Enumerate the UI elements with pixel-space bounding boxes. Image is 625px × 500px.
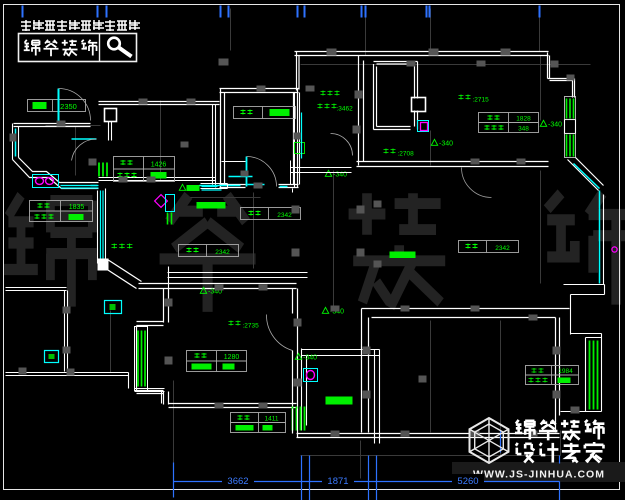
svg-text:-340: -340 [548,122,562,129]
svg-text:3662: 3662 [227,476,248,487]
svg-text:2342: 2342 [277,212,292,219]
svg-text:-340: -340 [439,141,453,148]
svg-text::3462: :3462 [337,106,354,113]
svg-text:2342: 2342 [215,249,230,256]
svg-text::2735: :2735 [243,323,260,330]
svg-text:-340: -340 [303,355,317,362]
svg-text:348: 348 [518,126,529,133]
svg-text:2350: 2350 [60,102,77,111]
svg-text:5260: 5260 [457,476,478,487]
svg-text:1835: 1835 [69,204,85,211]
svg-text::2715: :2715 [473,97,490,104]
svg-text:1426: 1426 [151,162,167,169]
svg-text:1280: 1280 [224,354,240,361]
svg-text:WWW.JS-JINHUA.COM: WWW.JS-JINHUA.COM [473,469,605,481]
svg-text:1411: 1411 [265,416,279,423]
svg-text::2708: :2708 [398,151,415,158]
svg-text:1984: 1984 [558,368,573,375]
svg-text:1871: 1871 [327,476,348,487]
svg-text:1828: 1828 [516,116,531,123]
svg-text:2342: 2342 [495,245,510,252]
